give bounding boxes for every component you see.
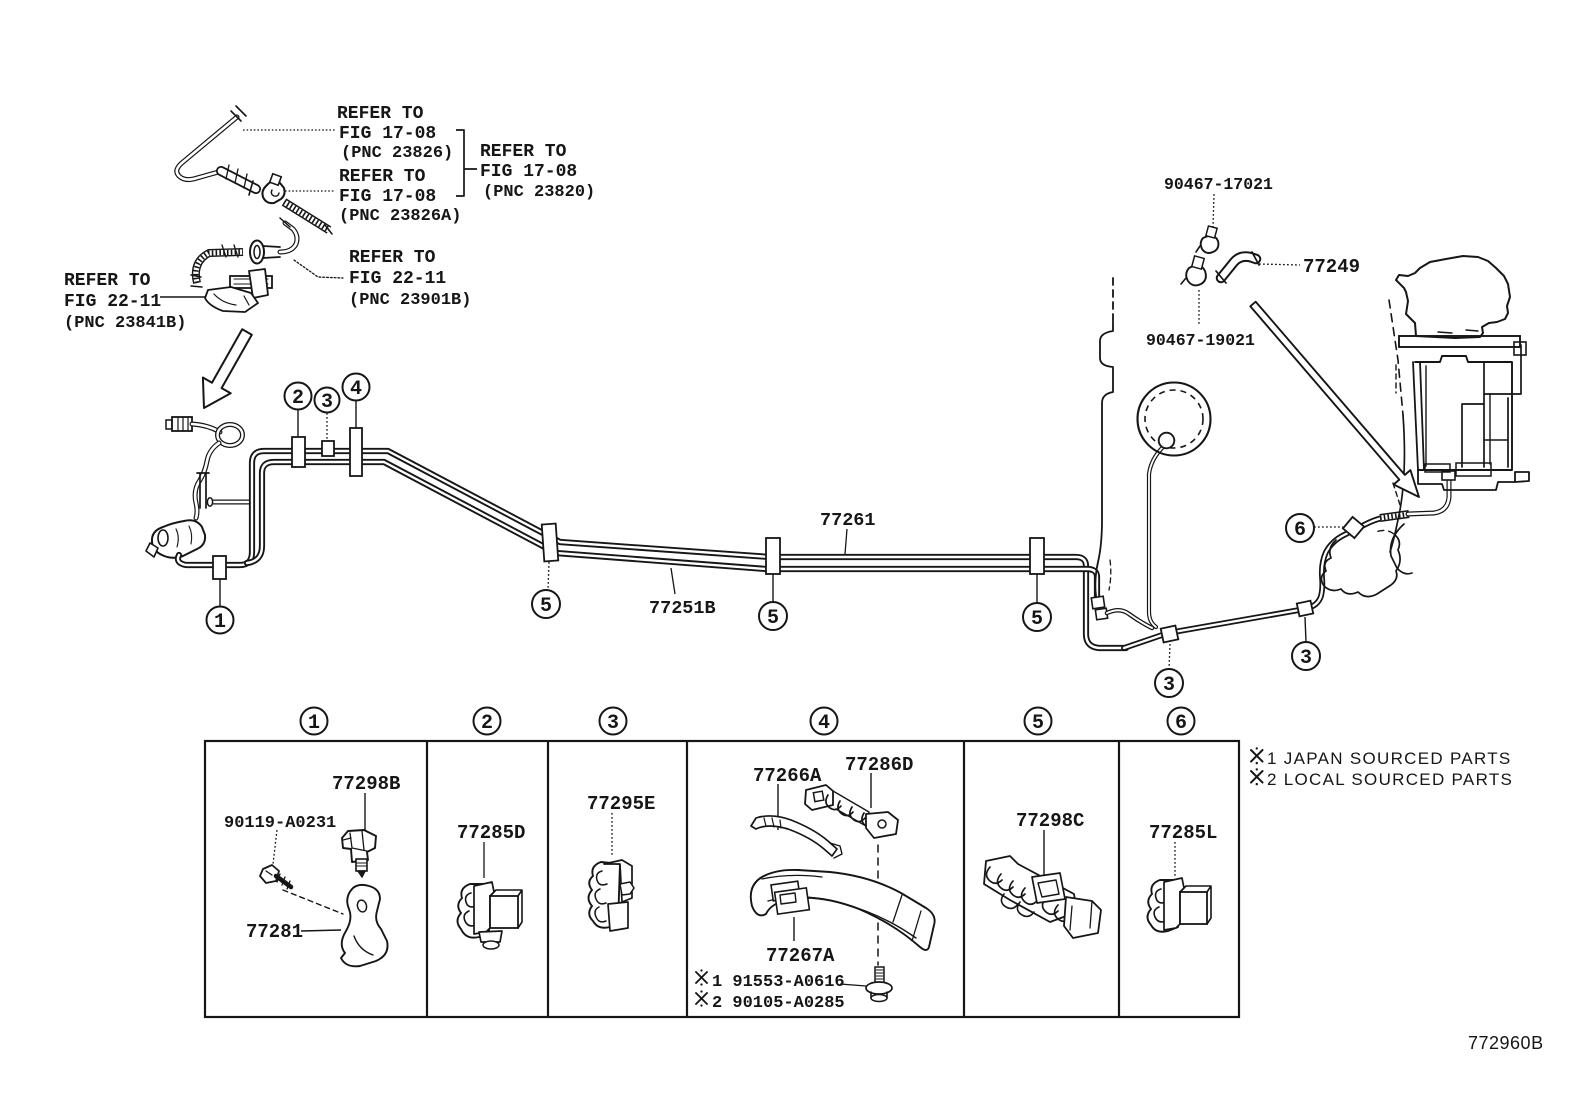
svg-text:77295E: 77295E: [587, 793, 655, 815]
svg-text:(PNC 23826A): (PNC 23826A): [339, 207, 461, 226]
svg-text:1: 1: [214, 611, 226, 634]
svg-text:2 90105-A0285: 2 90105-A0285: [712, 994, 845, 1013]
svg-text:2: 2: [292, 387, 304, 410]
svg-text:2: 2: [481, 712, 493, 735]
svg-text:(PNC 23826): (PNC 23826): [341, 144, 453, 163]
svg-text:77285D: 77285D: [457, 822, 525, 844]
svg-text:5: 5: [1032, 712, 1044, 735]
svg-text:90467-19021: 90467-19021: [1146, 331, 1255, 350]
svg-text:FIG 17-08: FIG 17-08: [339, 187, 436, 207]
svg-text:REFER TO: REFER TO: [349, 248, 436, 268]
svg-text:REFER TO: REFER TO: [64, 271, 151, 291]
svg-text:FIG 22-11: FIG 22-11: [349, 269, 446, 289]
svg-text:77285L: 77285L: [1149, 822, 1217, 844]
svg-text:6: 6: [1294, 519, 1306, 542]
svg-text:1 91553-A0616: 1 91553-A0616: [712, 973, 845, 992]
svg-text:77249: 77249: [1303, 256, 1360, 278]
svg-text:(PNC 23901B): (PNC 23901B): [349, 291, 471, 310]
svg-text:77251B: 77251B: [649, 598, 716, 619]
svg-text:77267A: 77267A: [766, 945, 835, 967]
svg-text:1: 1: [308, 712, 320, 735]
svg-text:77261: 77261: [820, 510, 876, 531]
svg-text:4: 4: [350, 378, 362, 401]
svg-text:FIG 22-11: FIG 22-11: [64, 292, 161, 312]
svg-text:REFER TO: REFER TO: [337, 104, 424, 124]
svg-text:3: 3: [321, 391, 333, 414]
svg-text:(PNC 23841B): (PNC 23841B): [64, 314, 186, 333]
svg-text:3: 3: [1163, 674, 1175, 697]
svg-text:90119-A0231: 90119-A0231: [224, 814, 336, 833]
svg-text:1 JAPAN SOURCED PARTS: 1 JAPAN SOURCED PARTS: [1267, 749, 1512, 768]
svg-text:REFER TO: REFER TO: [480, 142, 567, 162]
svg-text:6: 6: [1175, 712, 1187, 735]
svg-text:5: 5: [767, 607, 779, 630]
svg-text:77266A: 77266A: [753, 765, 822, 787]
svg-text:77281: 77281: [246, 921, 303, 943]
svg-text:90467-17021: 90467-17021: [1164, 175, 1273, 194]
svg-text:77298B: 77298B: [332, 773, 400, 795]
svg-text:REFER TO: REFER TO: [339, 167, 426, 187]
svg-text:3: 3: [607, 712, 619, 735]
svg-text:772960B: 772960B: [1468, 1033, 1544, 1053]
svg-text:77286D: 77286D: [845, 754, 913, 776]
svg-text:2 LOCAL SOURCED PARTS: 2 LOCAL SOURCED PARTS: [1267, 770, 1513, 789]
svg-text:(PNC 23820): (PNC 23820): [483, 183, 595, 202]
svg-text:3: 3: [1300, 647, 1312, 670]
svg-text:FIG 17-08: FIG 17-08: [480, 162, 577, 182]
svg-text:77298C: 77298C: [1016, 810, 1084, 832]
svg-text:5: 5: [540, 595, 552, 618]
svg-text:4: 4: [818, 712, 830, 735]
svg-text:5: 5: [1031, 608, 1043, 631]
svg-text:FIG 17-08: FIG 17-08: [339, 124, 436, 144]
